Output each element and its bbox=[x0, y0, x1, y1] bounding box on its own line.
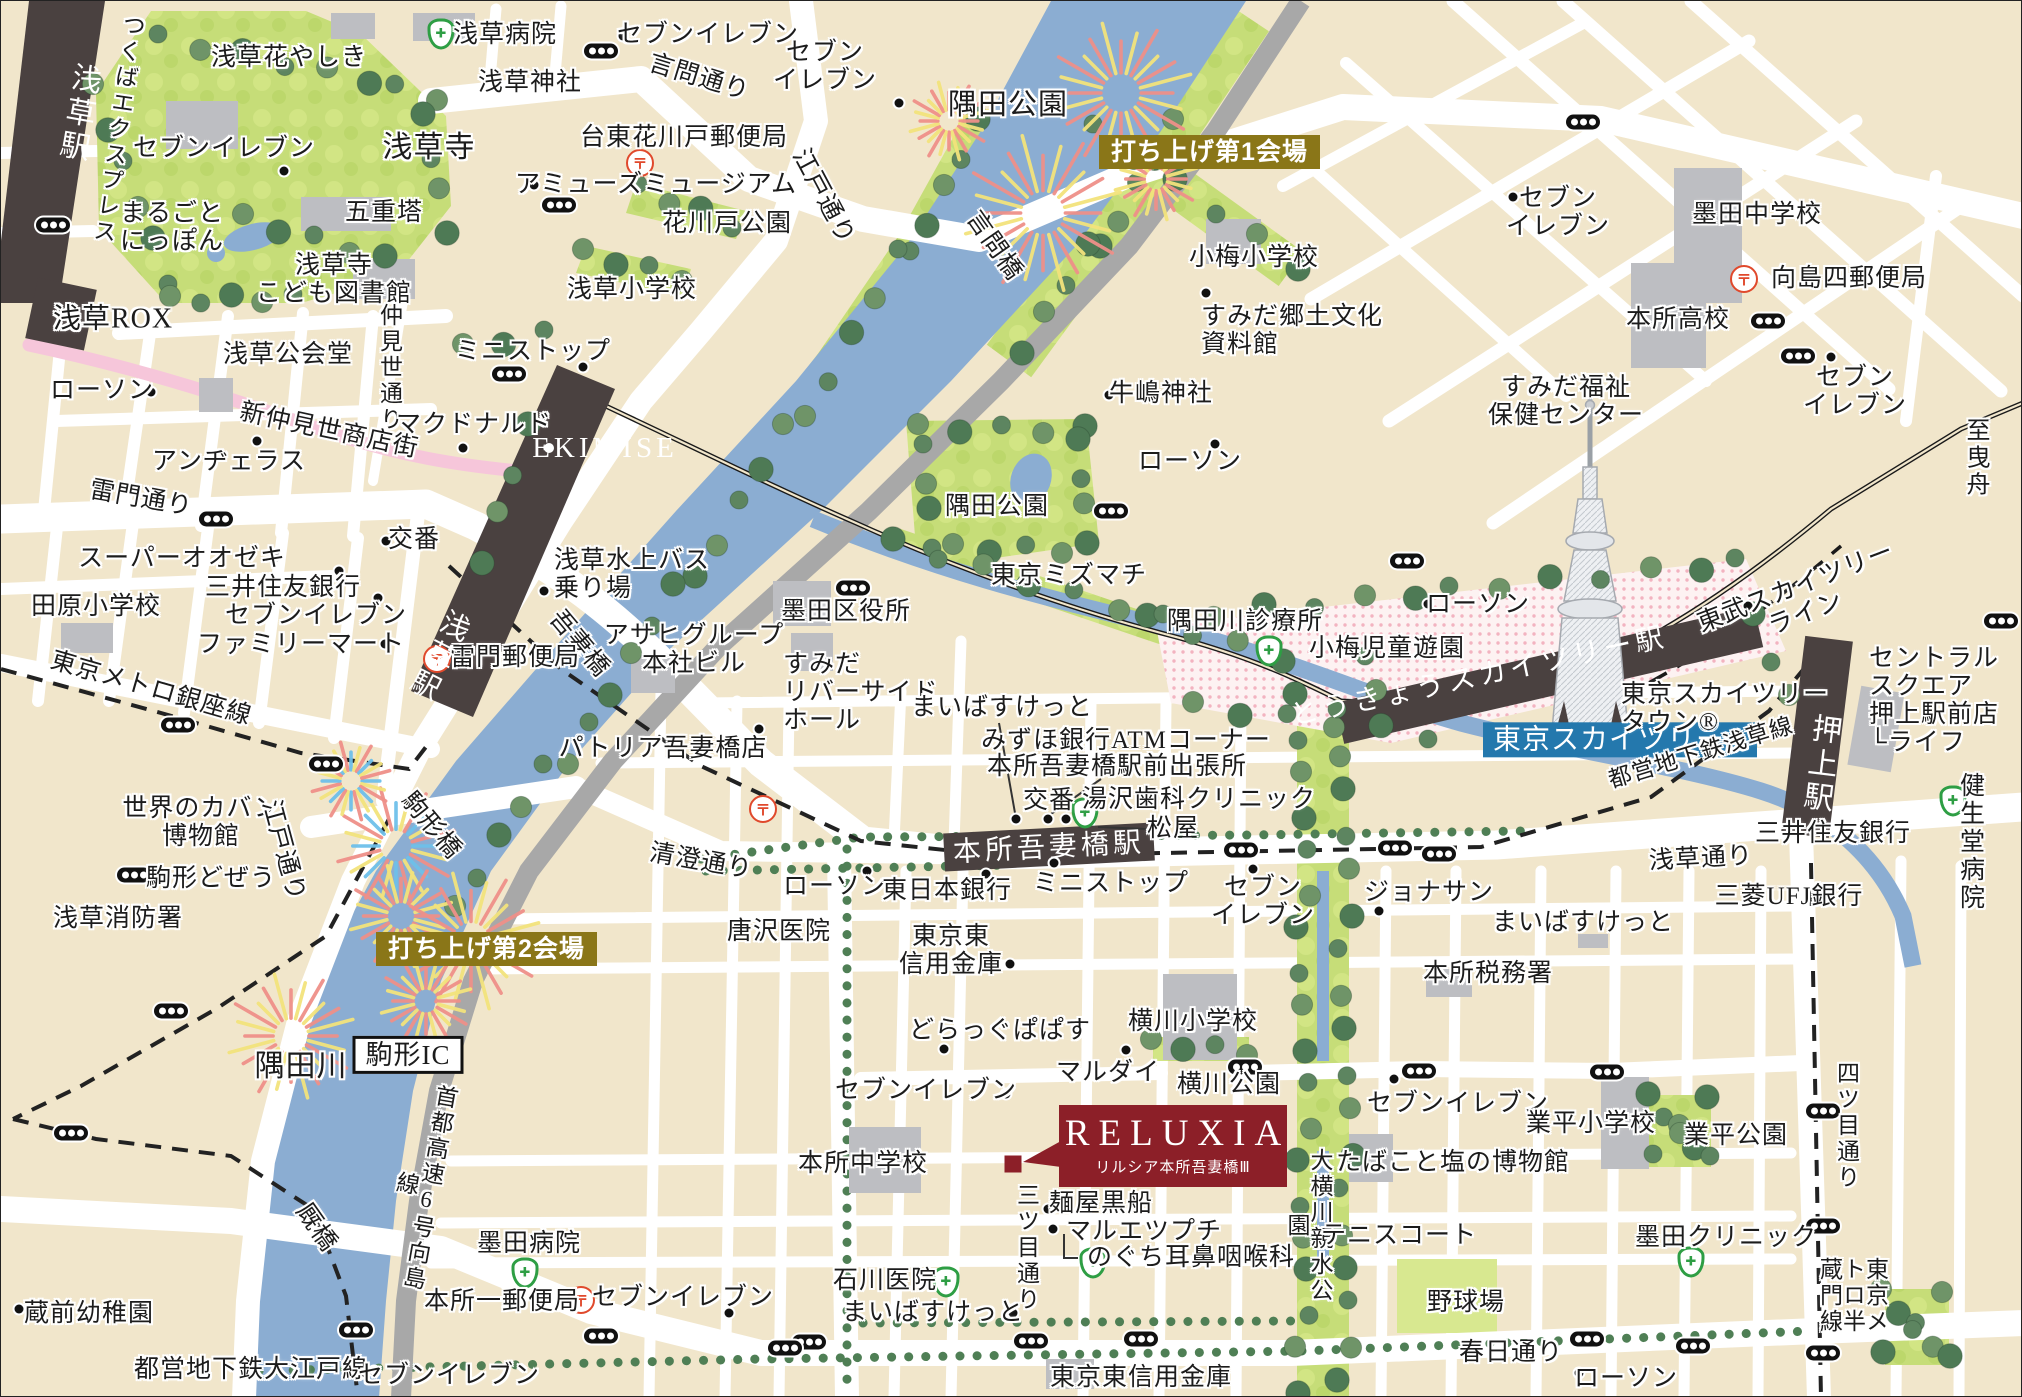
asakusa-rox-building bbox=[25, 277, 97, 350]
map-base-art bbox=[1, 1, 2022, 1397]
area-map: 〒〒〒〒〒 浅草駅つくばエクスプレス浅草花やしき浅草病院セブンイレブンまるごと … bbox=[0, 0, 2022, 1397]
reluxia-property-name: リルシア本所吾妻橋Ⅲ bbox=[1095, 1156, 1250, 1177]
reluxia-brand: RELUXIA bbox=[1056, 1115, 1290, 1152]
reluxia-badge: RELUXIA リルシア本所吾妻橋Ⅲ bbox=[1059, 1105, 1287, 1187]
